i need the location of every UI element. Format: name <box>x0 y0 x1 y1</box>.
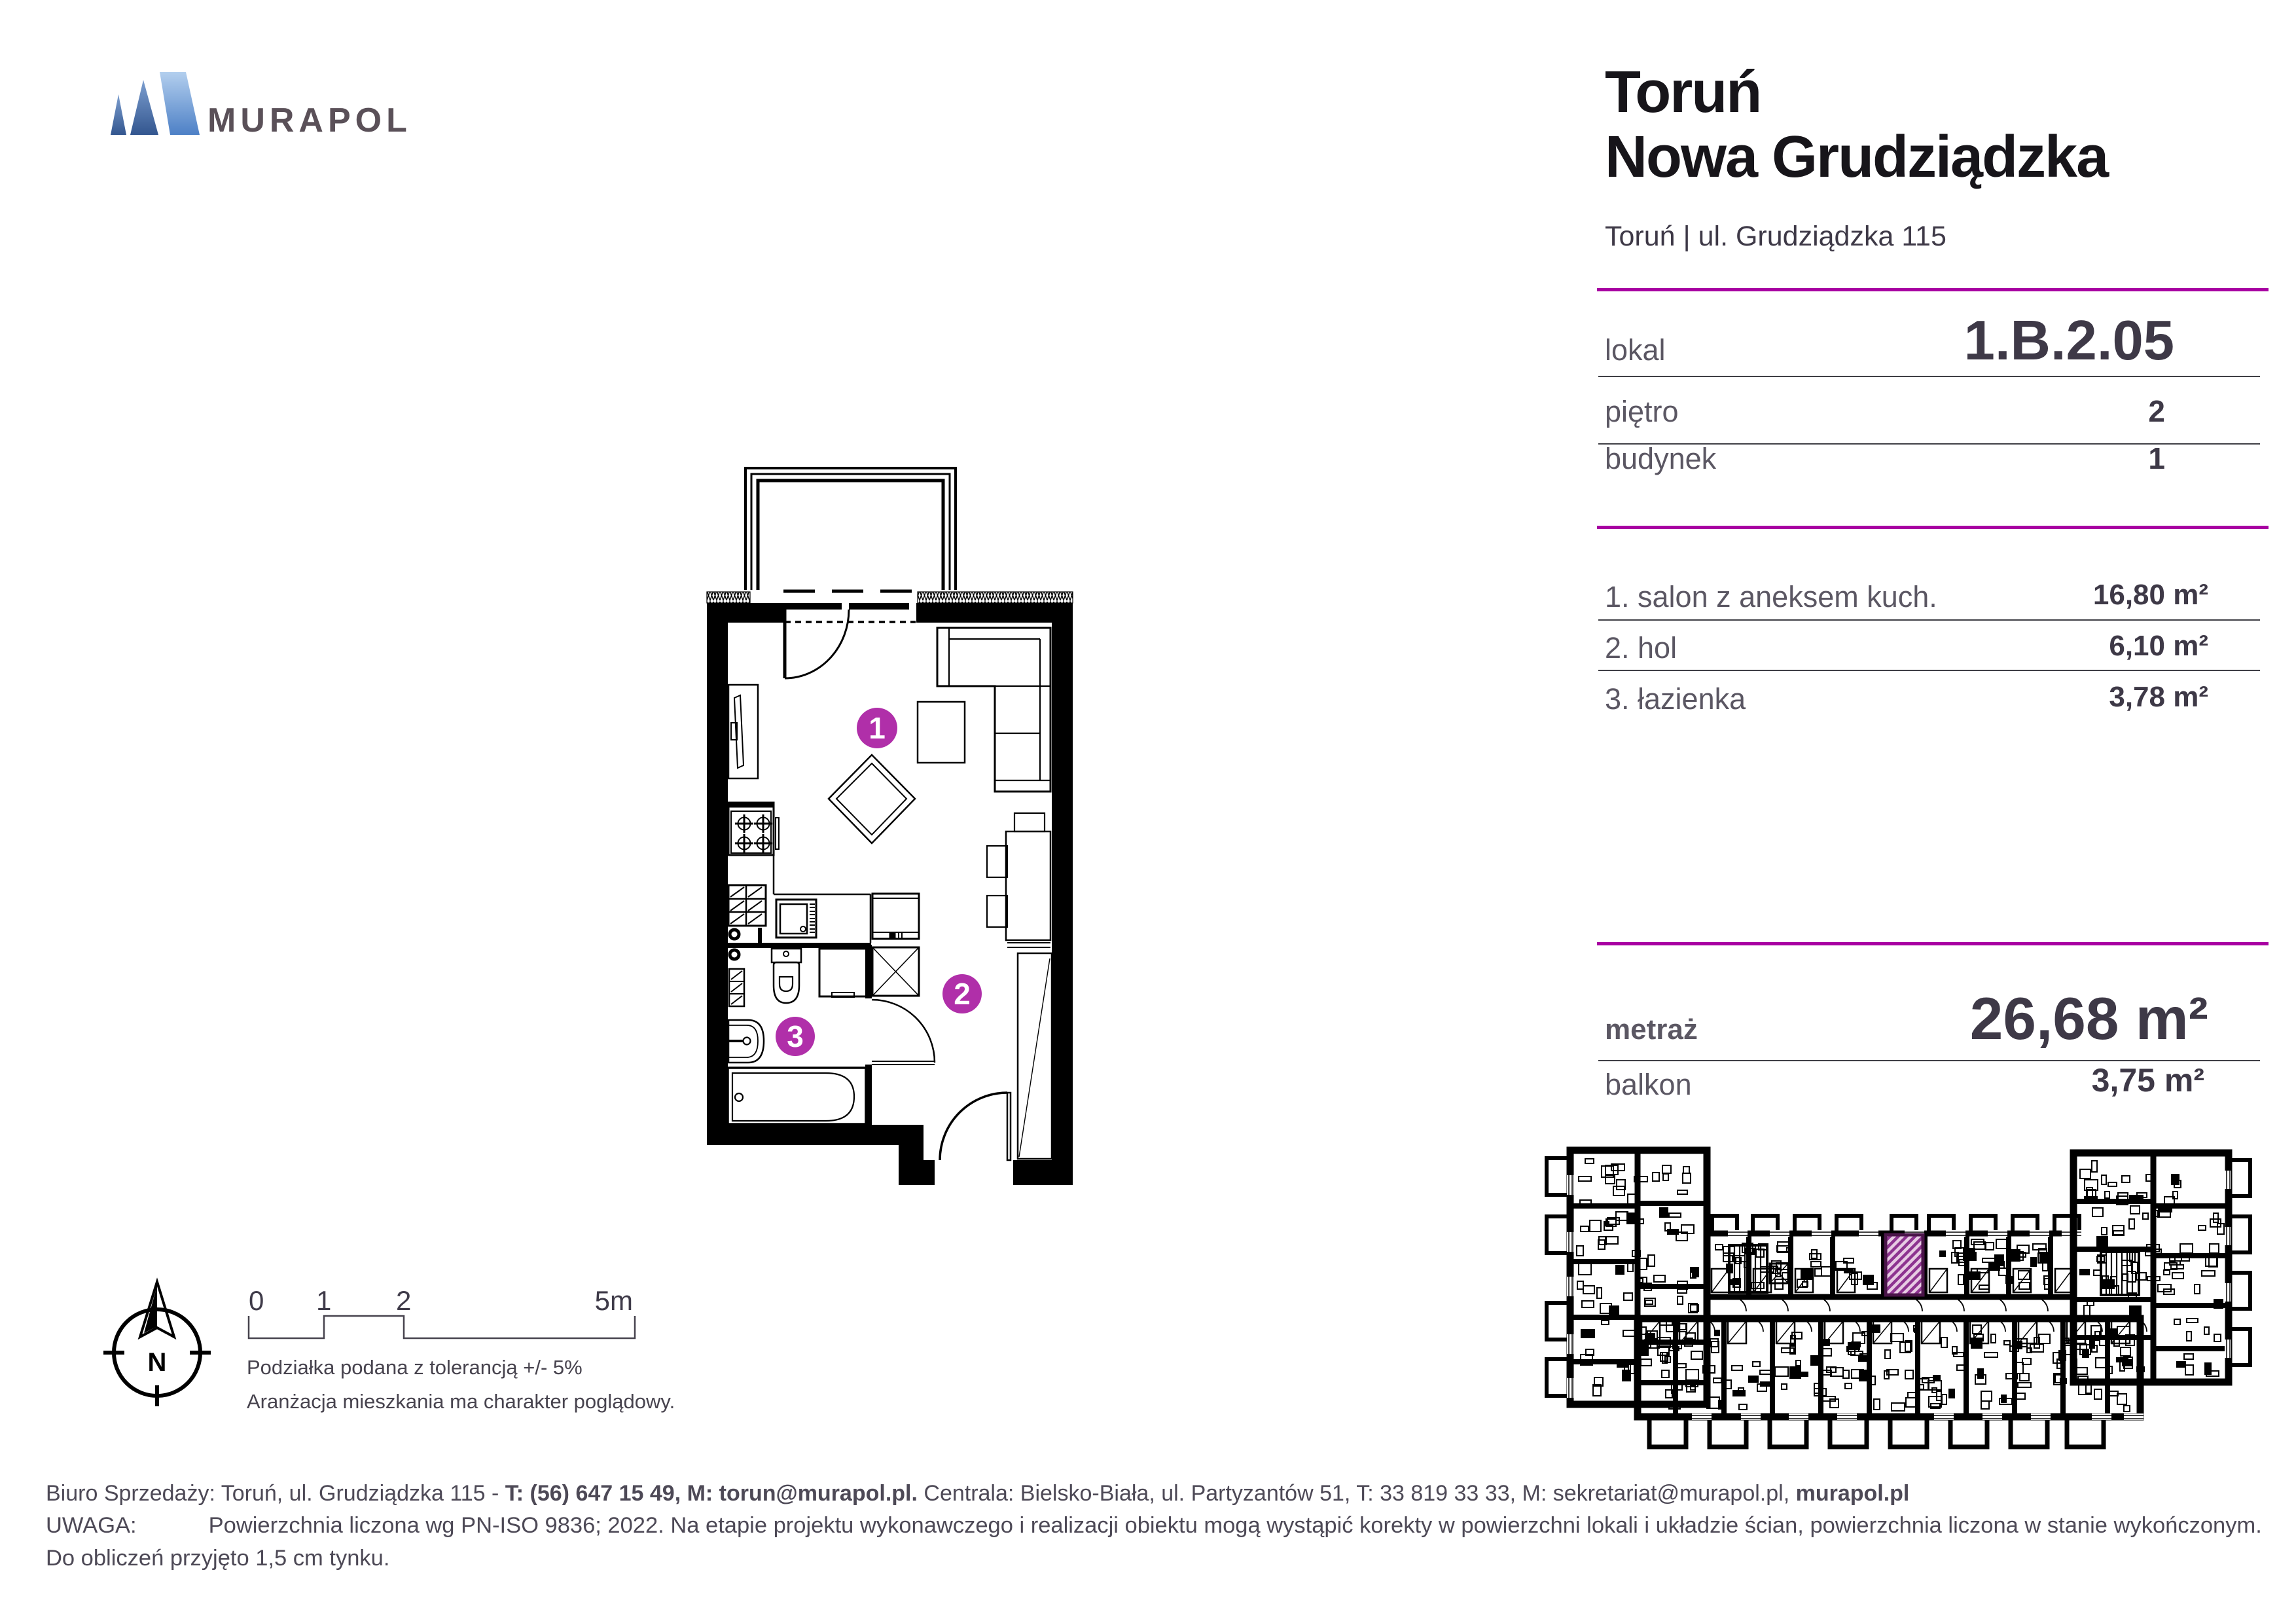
svg-text:1: 1 <box>316 1285 331 1316</box>
svg-text:2: 2 <box>396 1285 411 1316</box>
svg-text:N: N <box>148 1348 167 1377</box>
svg-text:0: 0 <box>249 1285 264 1316</box>
svg-text:5m: 5m <box>595 1285 633 1316</box>
svg-text:2: 2 <box>954 977 971 1011</box>
svg-text:3: 3 <box>787 1019 804 1053</box>
svg-text:1: 1 <box>869 711 886 745</box>
